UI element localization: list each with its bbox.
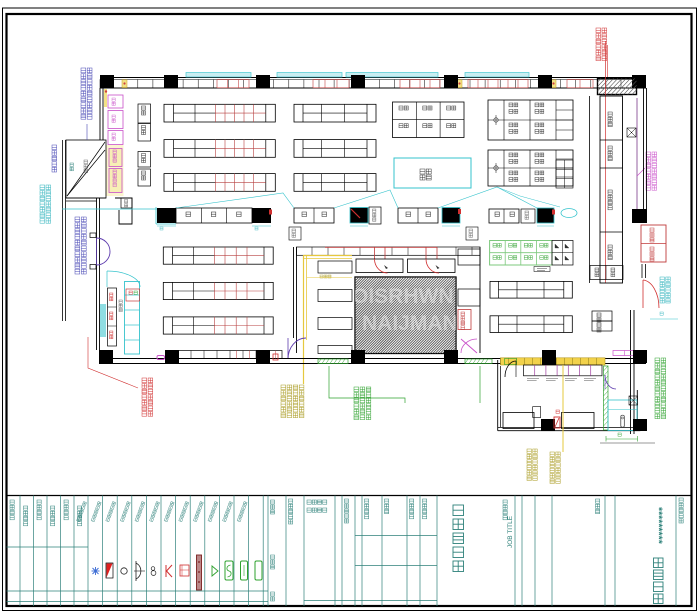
svg-text:JOB TITLE: JOB TITLE [507, 515, 514, 548]
svg-text:NAIJMAN: NAIJMAN [362, 312, 458, 335]
svg-text:OISRHWN: OISRHWN [352, 285, 454, 308]
svg-text:*********: ********* [653, 507, 665, 545]
